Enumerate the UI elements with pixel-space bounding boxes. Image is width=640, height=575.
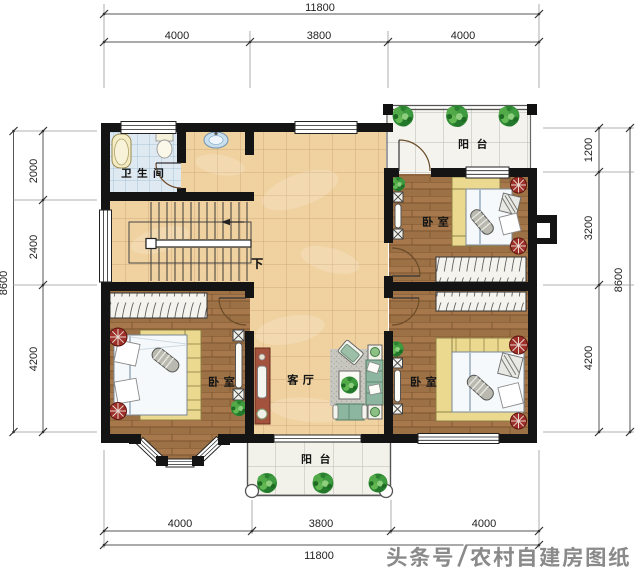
svg-text:4000: 4000 <box>451 30 475 42</box>
svg-text:11800: 11800 <box>305 2 335 14</box>
svg-text:4200: 4200 <box>583 346 595 370</box>
svg-text:8600: 8600 <box>0 271 10 295</box>
svg-text:11800: 11800 <box>304 550 334 562</box>
svg-text:4000: 4000 <box>168 518 192 530</box>
svg-text:4000: 4000 <box>472 518 496 530</box>
svg-text:3800: 3800 <box>309 518 333 530</box>
svg-text:4200: 4200 <box>28 347 40 371</box>
svg-text:4000: 4000 <box>165 30 189 42</box>
svg-text:8600: 8600 <box>613 268 625 292</box>
svg-text:3800: 3800 <box>307 30 331 42</box>
svg-text:1200: 1200 <box>583 138 595 162</box>
svg-text:3200: 3200 <box>583 216 595 240</box>
svg-text:2000: 2000 <box>28 159 40 183</box>
svg-text:2400: 2400 <box>28 235 40 259</box>
